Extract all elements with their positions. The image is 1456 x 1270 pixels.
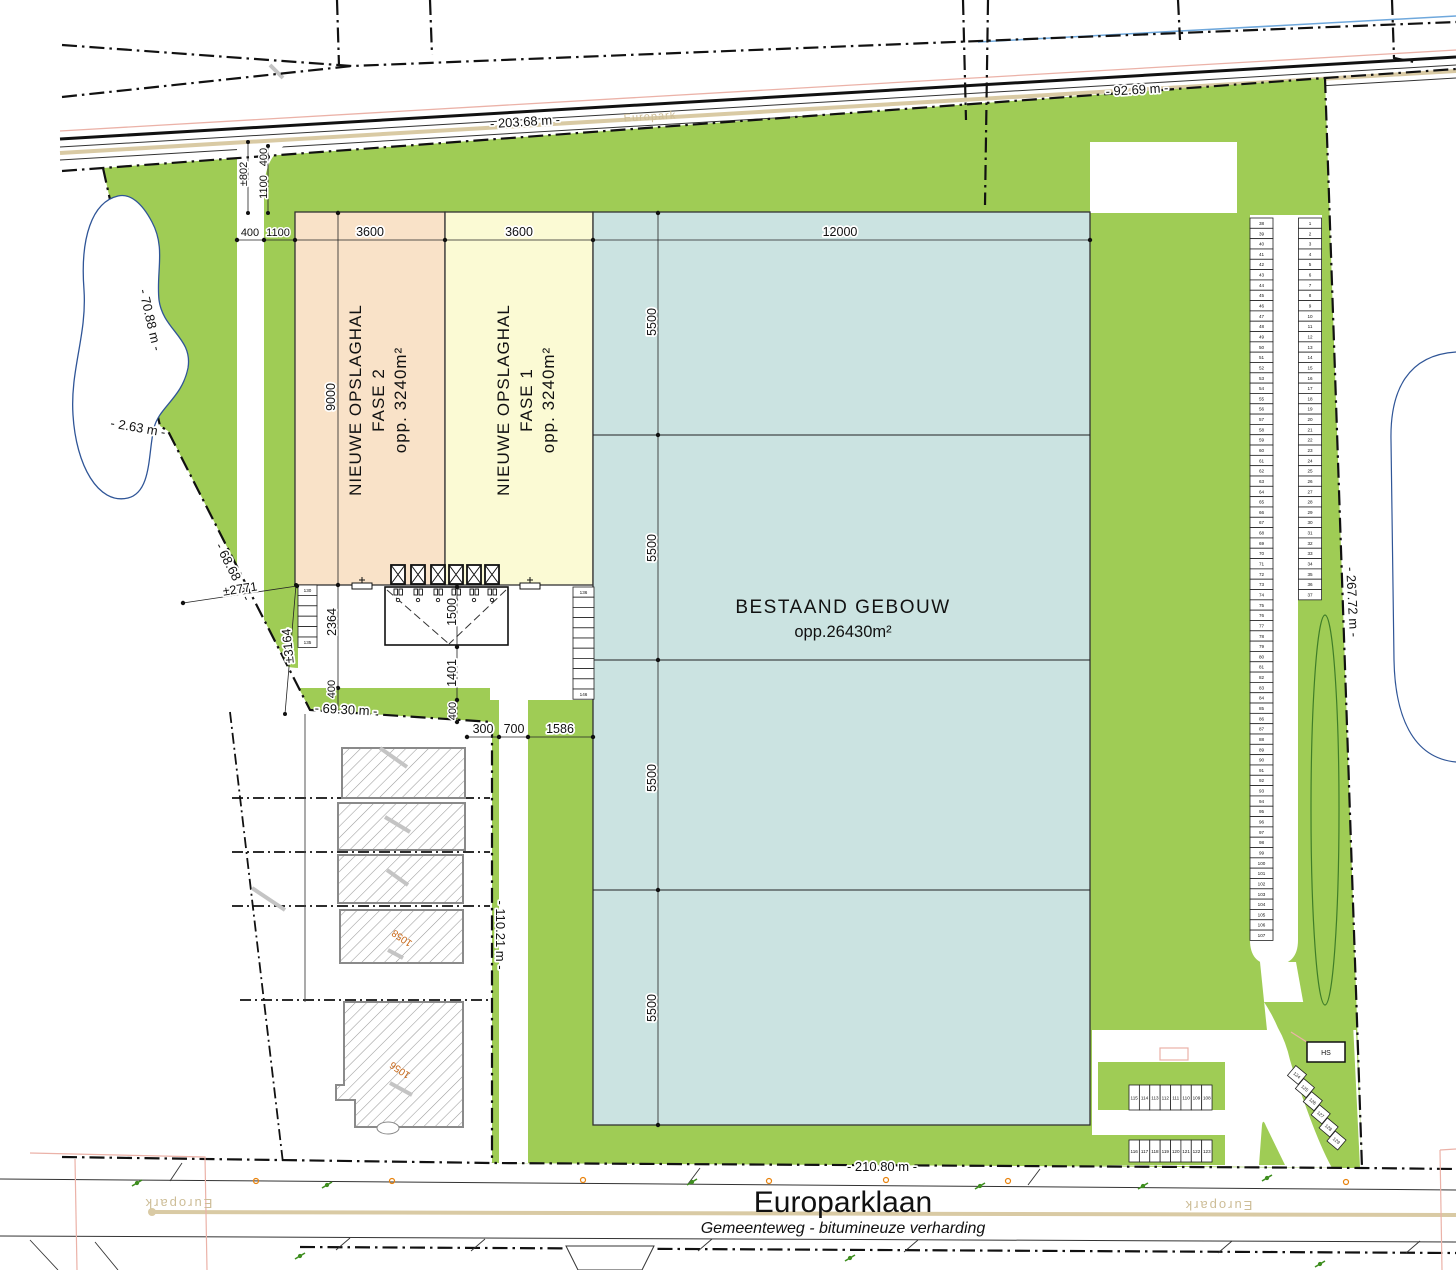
parking-stall-number: 44: [1259, 283, 1265, 288]
parking-stall-number: 97: [1259, 830, 1265, 835]
parking-stall-number: 26: [1307, 479, 1313, 484]
existing-building-area: opp.26430m²: [794, 623, 892, 641]
parking-stall-number: 81: [1259, 665, 1265, 670]
parking-stall-number: 121: [1182, 1149, 1190, 1154]
basemap-road-label-east: Europark: [1184, 1198, 1253, 1213]
parking-stall-number: 82: [1259, 675, 1265, 680]
dim-210m: - 210.80 m -: [847, 1159, 917, 1174]
parking-stall-number: 86: [1259, 716, 1265, 721]
parking-stall-number: 106: [1258, 923, 1266, 928]
dim-5500-2: 5500: [645, 534, 659, 562]
parking-stall-number: 100: [1258, 861, 1266, 866]
parking-stall-number: 96: [1259, 820, 1265, 825]
parking-stall-number: 98: [1259, 840, 1265, 845]
parking-stall-number: 41: [1259, 252, 1265, 257]
parking-stall-number: 113: [1151, 1096, 1159, 1101]
parking-stall-number: 73: [1259, 582, 1265, 587]
dim-1586: 1586: [546, 722, 574, 736]
south-crossing: [566, 1246, 654, 1270]
parking-stall-number: 83: [1259, 685, 1265, 690]
parking-stall-number: 119: [1162, 1149, 1170, 1154]
dim-802: ±802: [238, 162, 250, 186]
parking-stall-number: 65: [1259, 500, 1265, 505]
parking-stall-number: 22: [1307, 438, 1313, 443]
parking-stall-number: 80: [1259, 654, 1265, 659]
dock-stall: [298, 595, 317, 605]
parking-stall-number: 93: [1259, 789, 1265, 794]
parking-stall-number: 91: [1259, 768, 1265, 773]
parking-stall-number: 84: [1259, 696, 1265, 701]
dim-9000: 9000: [324, 383, 338, 411]
dock-stall: [573, 658, 594, 668]
parking-stall-number: 51: [1259, 355, 1265, 360]
parking-stall-number: 9: [1309, 304, 1312, 309]
parking-stall-number: 1: [1309, 221, 1312, 226]
dim-3600-b: 3600: [505, 225, 533, 239]
dim-v400: 400: [258, 148, 270, 166]
parking-stall-number: 62: [1259, 469, 1265, 474]
parking-stall-number: 37: [1307, 592, 1313, 597]
dim-300: 300: [473, 722, 494, 736]
parking-stall-number: 43: [1259, 273, 1265, 278]
parking-stall-number: 75: [1259, 603, 1265, 608]
parking-stall-number: 19: [1307, 407, 1313, 412]
parking-stall-number: 6: [1309, 273, 1312, 278]
parking-stall-number: 120: [1172, 1149, 1180, 1154]
dock-stall-number: 146: [580, 692, 588, 697]
parking-stall-number: 13: [1307, 345, 1313, 350]
parking-stall-number: 123: [1203, 1149, 1211, 1154]
parking-stall-number: 122: [1193, 1149, 1201, 1154]
parking-stall-number: 64: [1259, 489, 1265, 494]
parking-stall-number: 60: [1259, 448, 1265, 453]
parking-stall-number: 76: [1259, 613, 1265, 618]
parking-stall-number: 58: [1259, 427, 1265, 432]
road-name: Europarklaan: [754, 1186, 932, 1219]
basemap-road-label-west: Europark: [144, 1196, 213, 1211]
dim-5500-1: 5500: [645, 308, 659, 336]
parking-stall-number: 57: [1259, 417, 1265, 422]
parking-stall-number: 70: [1259, 551, 1265, 556]
parking-stall-number: 2: [1309, 231, 1312, 236]
parking-stall-number: 92: [1259, 778, 1265, 783]
dim-400-mid: 400: [326, 680, 338, 698]
parking-stall-number: 49: [1259, 334, 1265, 339]
parking-stall-number: 79: [1259, 644, 1265, 649]
dock-stall-number: 136: [580, 590, 588, 595]
parking-stall-number: 7: [1309, 283, 1312, 288]
dim-v1100: 1100: [258, 175, 270, 199]
hall2-line3: opp. 3240m²: [391, 347, 410, 453]
parking-stall-number: 33: [1307, 551, 1313, 556]
hall1-line1: NIEUWE OPSLAGHAL: [494, 304, 513, 496]
dim-5500-3: 5500: [645, 764, 659, 792]
site-plan-drawing: 130135 136146 38394041424344454647484950…: [0, 0, 1456, 1270]
parking-stall-number: 108: [1203, 1096, 1211, 1101]
parking-stall-number: 11: [1308, 324, 1313, 329]
parking-column-east: 1234567891011121314151617181920212223242…: [1299, 218, 1322, 600]
pond-east: [1391, 352, 1456, 762]
parking-stall-number: 61: [1259, 458, 1265, 463]
parking-stall-number: 50: [1259, 345, 1265, 350]
parking-stall-number: 39: [1259, 231, 1265, 236]
dock-stall: [573, 679, 594, 689]
dock-stall: [573, 669, 594, 679]
dock-stall: [573, 618, 594, 628]
parking-stall-number: 31: [1307, 531, 1313, 536]
parking-stall-number: 59: [1259, 438, 1265, 443]
parking-stall-number: 107: [1258, 933, 1266, 938]
parking-stall-number: 8: [1309, 293, 1312, 298]
parking-stall-number: 116: [1131, 1149, 1139, 1154]
parking-stall-number: 67: [1259, 520, 1265, 525]
parking-stall-number: 105: [1258, 912, 1266, 917]
parking-stall-number: 46: [1259, 304, 1265, 309]
parking-stall-number: 55: [1259, 396, 1265, 401]
dock-stall-stack-west: 130135: [298, 585, 317, 647]
parking-stall-number: 28: [1307, 500, 1313, 505]
parking-stall-number: 47: [1259, 314, 1265, 319]
parking-stall-number: 109: [1193, 1096, 1201, 1101]
parking-stall-number: 12: [1307, 334, 1313, 339]
dock-stall: [573, 607, 594, 617]
hall1-line3: opp. 3240m²: [539, 347, 558, 453]
dock-stall: [298, 606, 317, 616]
parking-stall-number: 117: [1141, 1149, 1149, 1154]
dim-3600-a: 3600: [356, 225, 384, 239]
dock-stall: [573, 648, 594, 658]
dim-1500: 1500: [445, 598, 459, 626]
parking-stall-number: 71: [1259, 562, 1265, 567]
dock-stall-number: 130: [304, 588, 312, 593]
parking-stall-number: 66: [1259, 510, 1265, 515]
parking-stall-number: 112: [1162, 1096, 1170, 1101]
hs-label: HS: [1321, 1050, 1331, 1057]
parking-stall-number: 34: [1307, 562, 1313, 567]
dim-110m: - 110.21 m -: [493, 900, 508, 969]
north-yard: [1090, 142, 1237, 213]
parking-stall-number: 4: [1309, 252, 1312, 257]
road-subtitle: Gemeenteweg - bitumineuze verharding: [701, 1220, 986, 1237]
dim-2364: 2364: [325, 608, 339, 636]
parking-column-west: 3839404142434445464748495051525354555657…: [1250, 218, 1273, 940]
dim-700: 700: [504, 722, 525, 736]
dock-stall: [298, 627, 317, 637]
hall2-line2: FASE 2: [369, 368, 388, 432]
parking-stall-number: 21: [1307, 427, 1313, 432]
parking-stall-number: 10: [1307, 314, 1313, 319]
dock-stall-number: 135: [304, 640, 312, 645]
parking-stall-number: 114: [1141, 1096, 1149, 1101]
dock-stall: [573, 628, 594, 638]
existing-building: [593, 212, 1090, 1125]
hall1-line2: FASE 1: [517, 368, 536, 432]
parking-stall-number: 23: [1307, 448, 1313, 453]
parking-row-upper: 115114113112111110109108: [1129, 1085, 1212, 1110]
parking-stall-number: 27: [1307, 489, 1313, 494]
parking-stall-number: 29: [1307, 510, 1313, 515]
parking-row-lower: 116117118119120121122123: [1129, 1140, 1212, 1162]
dock-stall-stack-east: 136146: [573, 587, 594, 699]
parking-stall-number: 40: [1259, 242, 1265, 247]
parking-stall-number: 78: [1259, 634, 1265, 639]
dim-400-dock: 400: [447, 702, 459, 720]
dim-1401: 1401: [445, 659, 459, 687]
parking-stall-number: 48: [1259, 324, 1265, 329]
parking-stall-number: 53: [1259, 376, 1265, 381]
dim-5500-4: 5500: [645, 994, 659, 1022]
existing-building-name: BESTAAND GEBOUW: [735, 597, 950, 618]
parking-stall-number: 14: [1307, 355, 1313, 360]
dim-12000: 12000: [823, 225, 858, 239]
parking-stall-number: 25: [1307, 469, 1313, 474]
parking-stall-number: 90: [1259, 758, 1265, 763]
parking-stall-number: 63: [1259, 479, 1265, 484]
parking-stall-number: 101: [1258, 871, 1266, 876]
parking-stall-number: 88: [1259, 737, 1265, 742]
parking-stall-number: 45: [1259, 293, 1265, 298]
parking-stall-number: 15: [1307, 365, 1313, 370]
parking-stall-number: 20: [1307, 417, 1313, 422]
dock-stall: [573, 638, 594, 648]
parking-stall-number: 36: [1307, 582, 1313, 587]
parking-stall-number: 54: [1259, 386, 1265, 391]
hs-station: HS: [1307, 1042, 1345, 1062]
parking-stall-number: 103: [1258, 892, 1266, 897]
site-plan-canvas: 130135 136146 38394041424344454647484950…: [0, 0, 1456, 1270]
parking-stall-number: 16: [1307, 376, 1313, 381]
parking-stall-number: 77: [1259, 623, 1265, 628]
parking-stall-number: 42: [1259, 262, 1265, 267]
parking-stall-number: 68: [1259, 531, 1265, 536]
parking-stall-number: 89: [1259, 747, 1265, 752]
parking-stall-number: 72: [1259, 572, 1265, 577]
parking-stall-number: 17: [1307, 386, 1313, 391]
parking-stall-number: 95: [1259, 809, 1265, 814]
parking-stall-number: 38: [1259, 221, 1265, 226]
parking-stall-number: 110: [1182, 1096, 1190, 1101]
parking-stall-number: 115: [1131, 1096, 1139, 1101]
parking-stall-number: 30: [1307, 520, 1313, 525]
dock-stall: [573, 597, 594, 607]
dim-400-top: 400: [241, 227, 259, 239]
parking-stall-number: 118: [1151, 1149, 1159, 1154]
parking-stall-number: 104: [1258, 902, 1266, 907]
dim-1100-top: 1100: [266, 227, 290, 239]
parking-stall-number: 3: [1309, 242, 1312, 247]
dock-stall: [298, 616, 317, 626]
parking-stall-number: 87: [1259, 727, 1265, 732]
parking-stall-number: 74: [1259, 592, 1265, 597]
parking-stall-number: 24: [1307, 458, 1313, 463]
parking-stall-number: 69: [1259, 541, 1265, 546]
parking-stall-number: 102: [1258, 881, 1266, 886]
parking-stall-number: 18: [1307, 396, 1313, 401]
parking-stall-number: 5: [1309, 262, 1312, 267]
parking-stall-number: 85: [1259, 706, 1265, 711]
parking-stall-number: 52: [1259, 365, 1265, 370]
parking-stall-number: 32: [1307, 541, 1313, 546]
parking-stall-number: 99: [1259, 850, 1265, 855]
neighbour-building: [342, 748, 465, 798]
hall2-line1: NIEUWE OPSLAGHAL: [346, 304, 365, 496]
parking-stall-number: 56: [1259, 407, 1265, 412]
parking-stall-number: 111: [1172, 1096, 1179, 1101]
parking-stall-number: 94: [1259, 799, 1265, 804]
parking-stall-number: 35: [1307, 572, 1313, 577]
